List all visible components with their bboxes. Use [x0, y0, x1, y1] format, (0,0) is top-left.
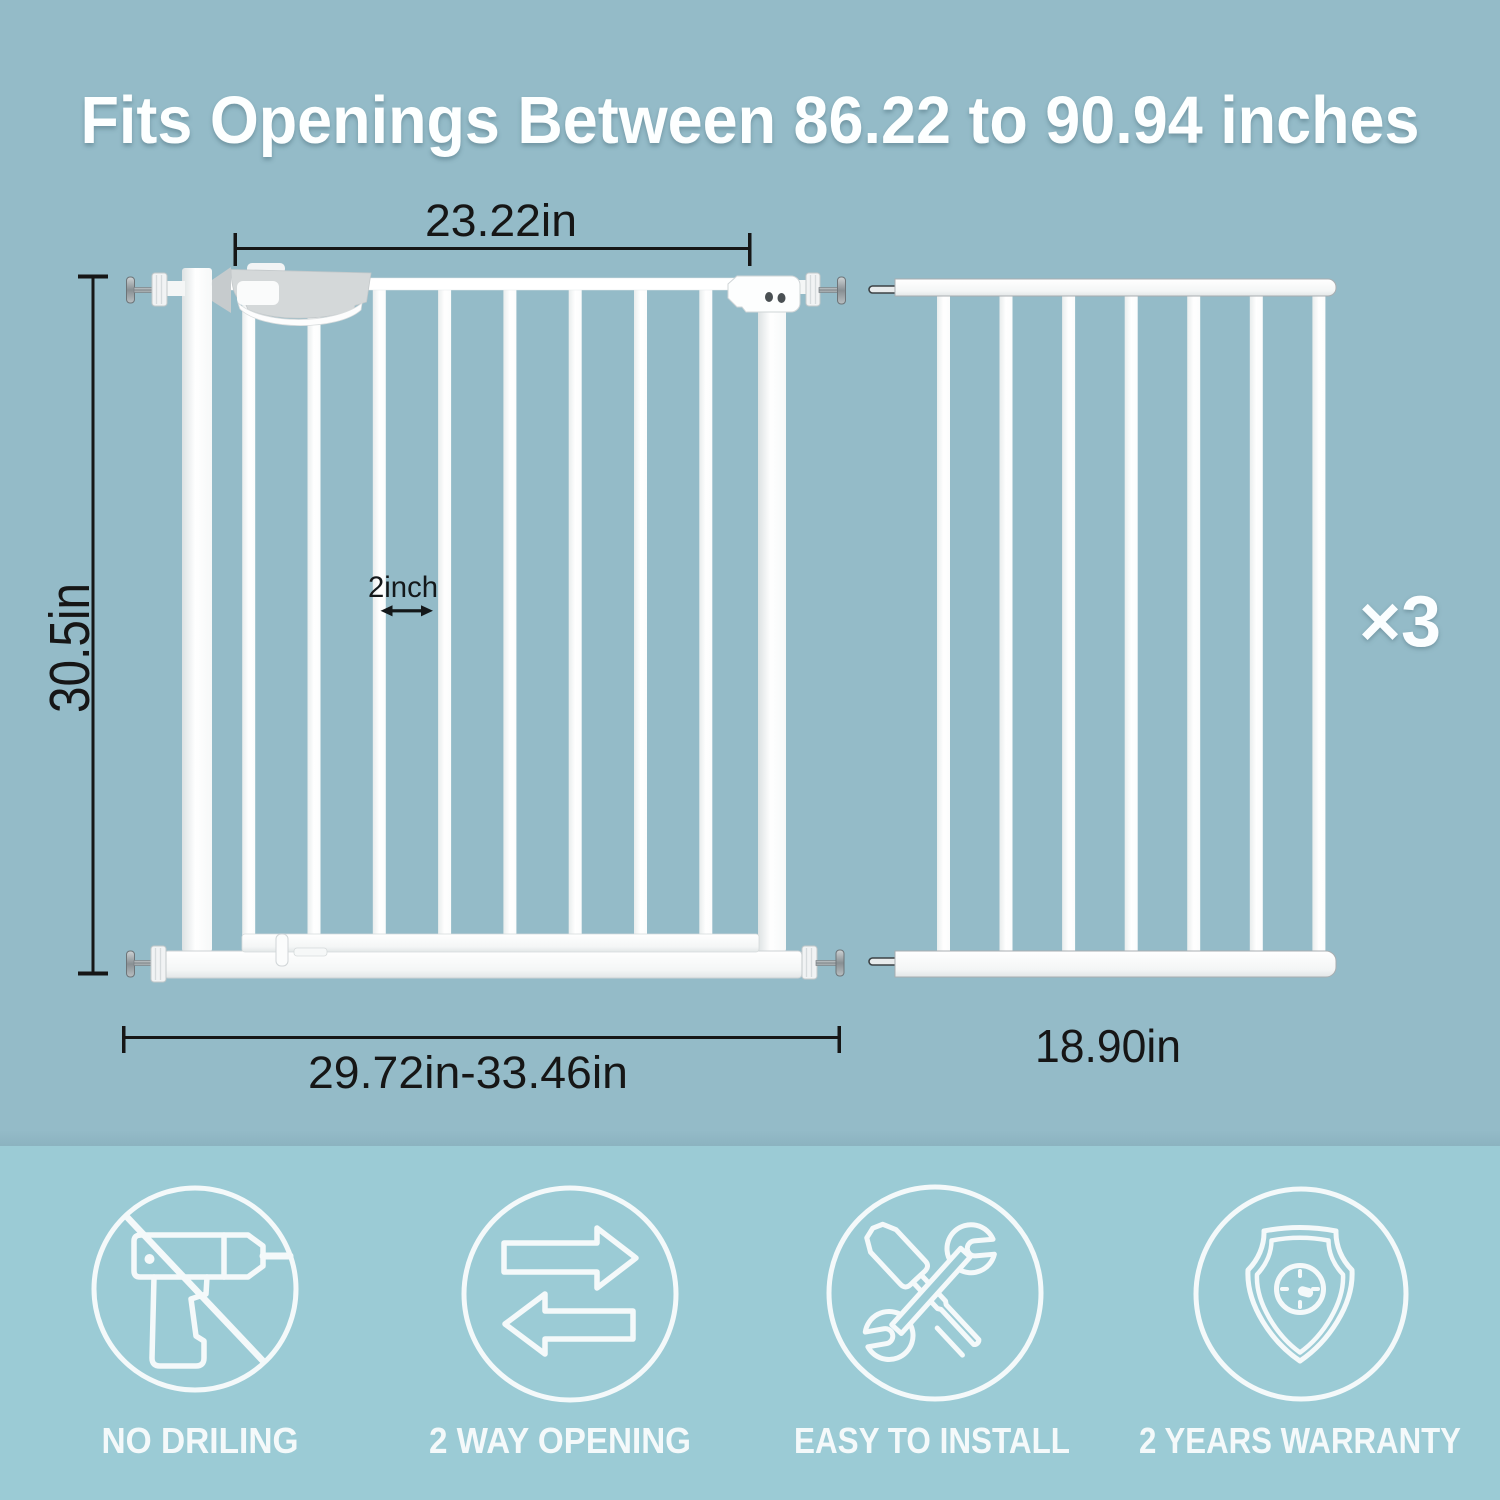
- svg-text:Fits Openings Between 86.22 to: Fits Openings Between 86.22 to 90.94 inc…: [81, 83, 1420, 158]
- svg-text:2 WAY OPENING: 2 WAY OPENING: [429, 1420, 691, 1461]
- svg-text:18.90in: 18.90in: [1035, 1020, 1181, 1072]
- svg-text:×3: ×3: [1359, 582, 1441, 662]
- svg-text:EASY TO INSTALL: EASY TO INSTALL: [794, 1420, 1070, 1461]
- svg-text:2inch: 2inch: [368, 571, 438, 604]
- svg-text:NO DRILING: NO DRILING: [102, 1420, 299, 1461]
- svg-text:23.22in: 23.22in: [425, 195, 577, 246]
- svg-text:29.72in-33.46in: 29.72in-33.46in: [308, 1047, 628, 1098]
- svg-text:2 YEARS WARRANTY: 2 YEARS WARRANTY: [1139, 1420, 1461, 1461]
